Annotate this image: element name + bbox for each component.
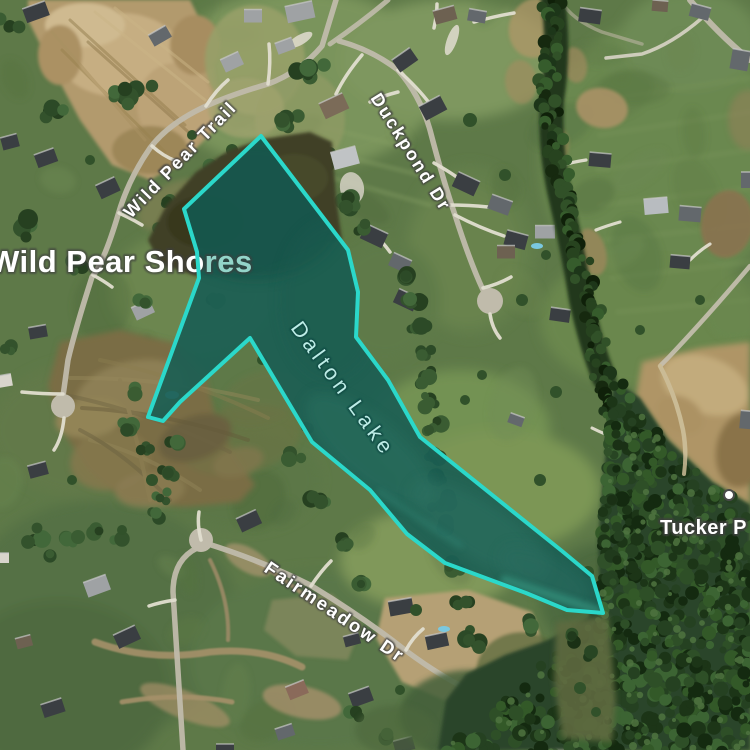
svg-text:Wild Pear Shores: Wild Pear Shores (0, 244, 253, 279)
svg-text:Tucker P: Tucker P (660, 517, 747, 539)
